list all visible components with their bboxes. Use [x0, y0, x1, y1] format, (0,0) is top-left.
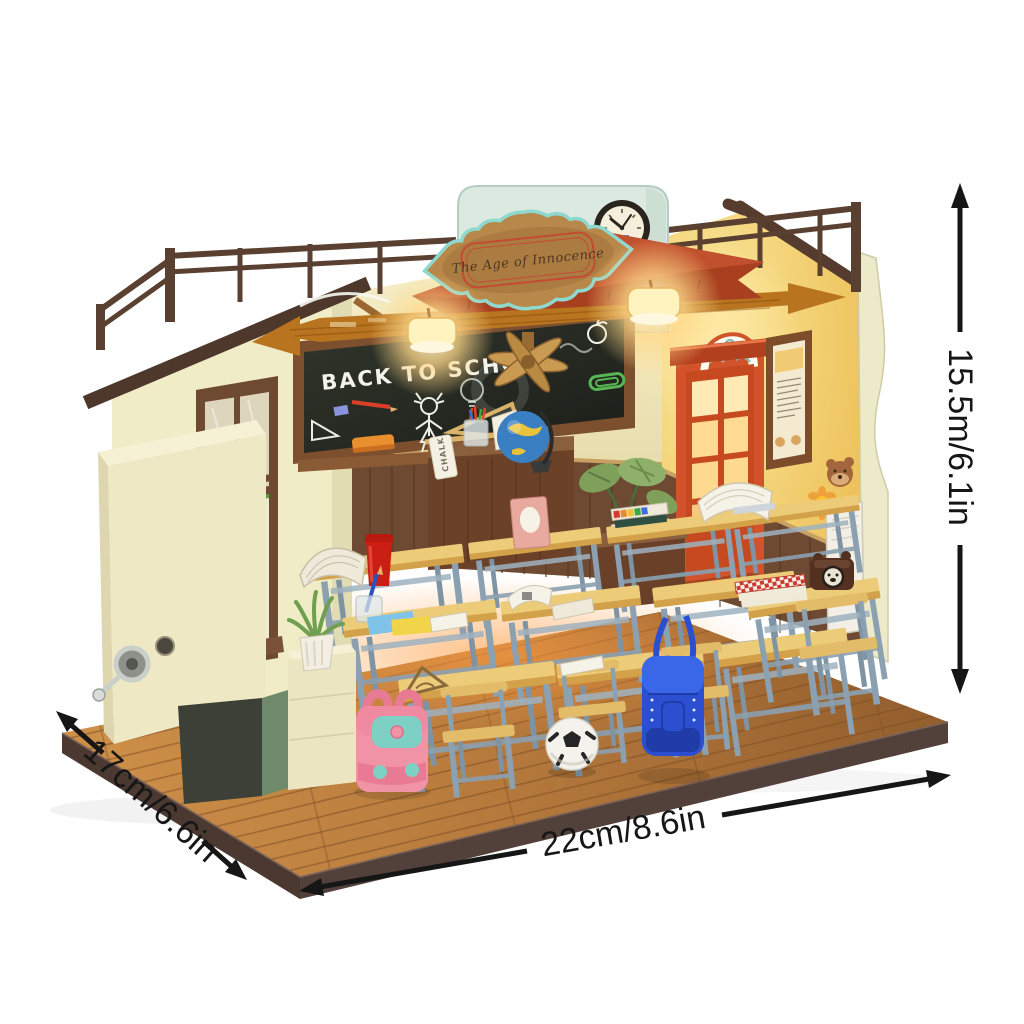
- standing-notebook: [510, 496, 550, 549]
- product-image: BACK TO SCHOOL: [0, 0, 1024, 1024]
- red-cup: [365, 534, 393, 586]
- certificate-frame: [766, 330, 812, 470]
- lamp-right: [628, 288, 680, 325]
- pink-backpack: [354, 694, 430, 800]
- dollhouse-illustration: BACK TO SCHOOL: [0, 0, 1024, 1024]
- soccer-ball: [546, 718, 598, 778]
- height-dimension-label: 15.5m/6.1in: [941, 348, 979, 526]
- lamp-left: [408, 318, 456, 353]
- porthole: [156, 637, 174, 655]
- bear-decor: [826, 457, 854, 487]
